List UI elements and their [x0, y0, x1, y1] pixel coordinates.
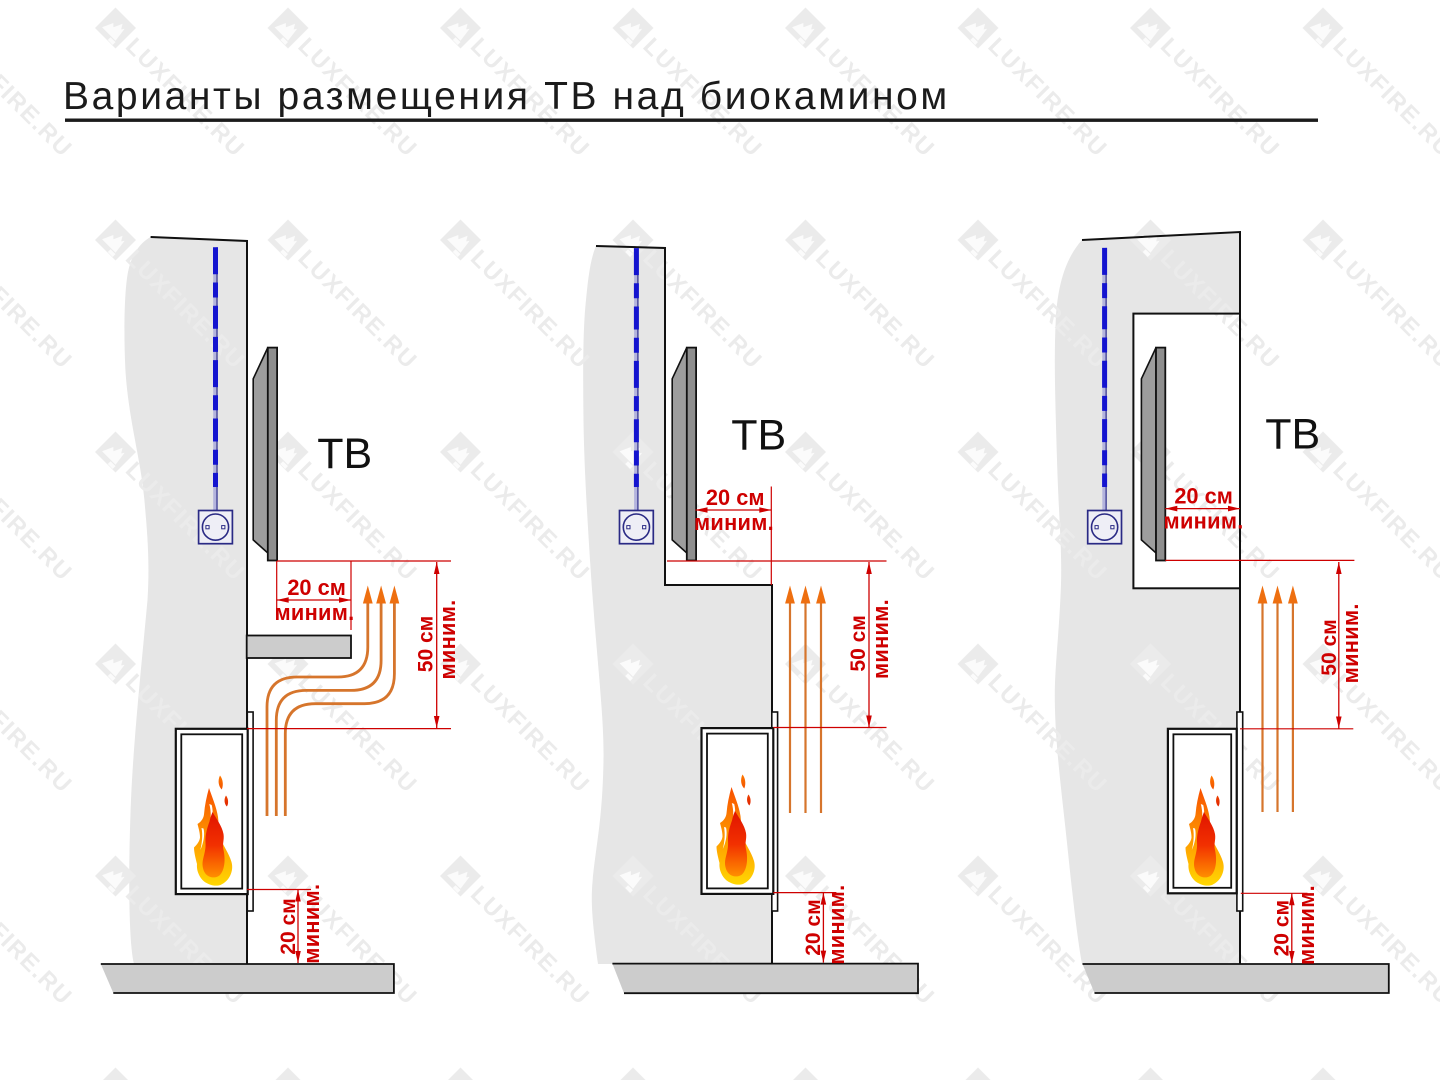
svg-text:миним.: миним. [1338, 603, 1363, 683]
svg-text:20 см: 20 см [802, 899, 825, 955]
svg-text:миним.: миним. [1294, 885, 1319, 965]
svg-text:миним.: миним. [868, 599, 893, 679]
svg-text:миним.: миним. [694, 510, 774, 535]
svg-text:50 см: 50 см [847, 615, 870, 671]
svg-text:20 см: 20 см [277, 898, 300, 954]
svg-text:миним.: миним. [1164, 509, 1244, 534]
svg-text:миним.: миним. [299, 884, 324, 964]
svg-text:20 см: 20 см [1174, 484, 1233, 509]
svg-text:20 см: 20 см [1271, 900, 1294, 956]
svg-text:ТВ: ТВ [731, 412, 786, 460]
svg-text:миним.: миним. [824, 885, 849, 965]
svg-text:миним.: миним. [274, 600, 354, 625]
svg-text:ТВ: ТВ [317, 430, 372, 478]
svg-text:20 см: 20 см [706, 485, 765, 510]
svg-text:миним.: миним. [435, 599, 460, 679]
svg-text:ТВ: ТВ [1265, 411, 1320, 459]
svg-text:20 см: 20 см [287, 575, 346, 600]
svg-text:Варианты размещения ТВ над био: Варианты размещения ТВ над биокамином [63, 75, 950, 118]
